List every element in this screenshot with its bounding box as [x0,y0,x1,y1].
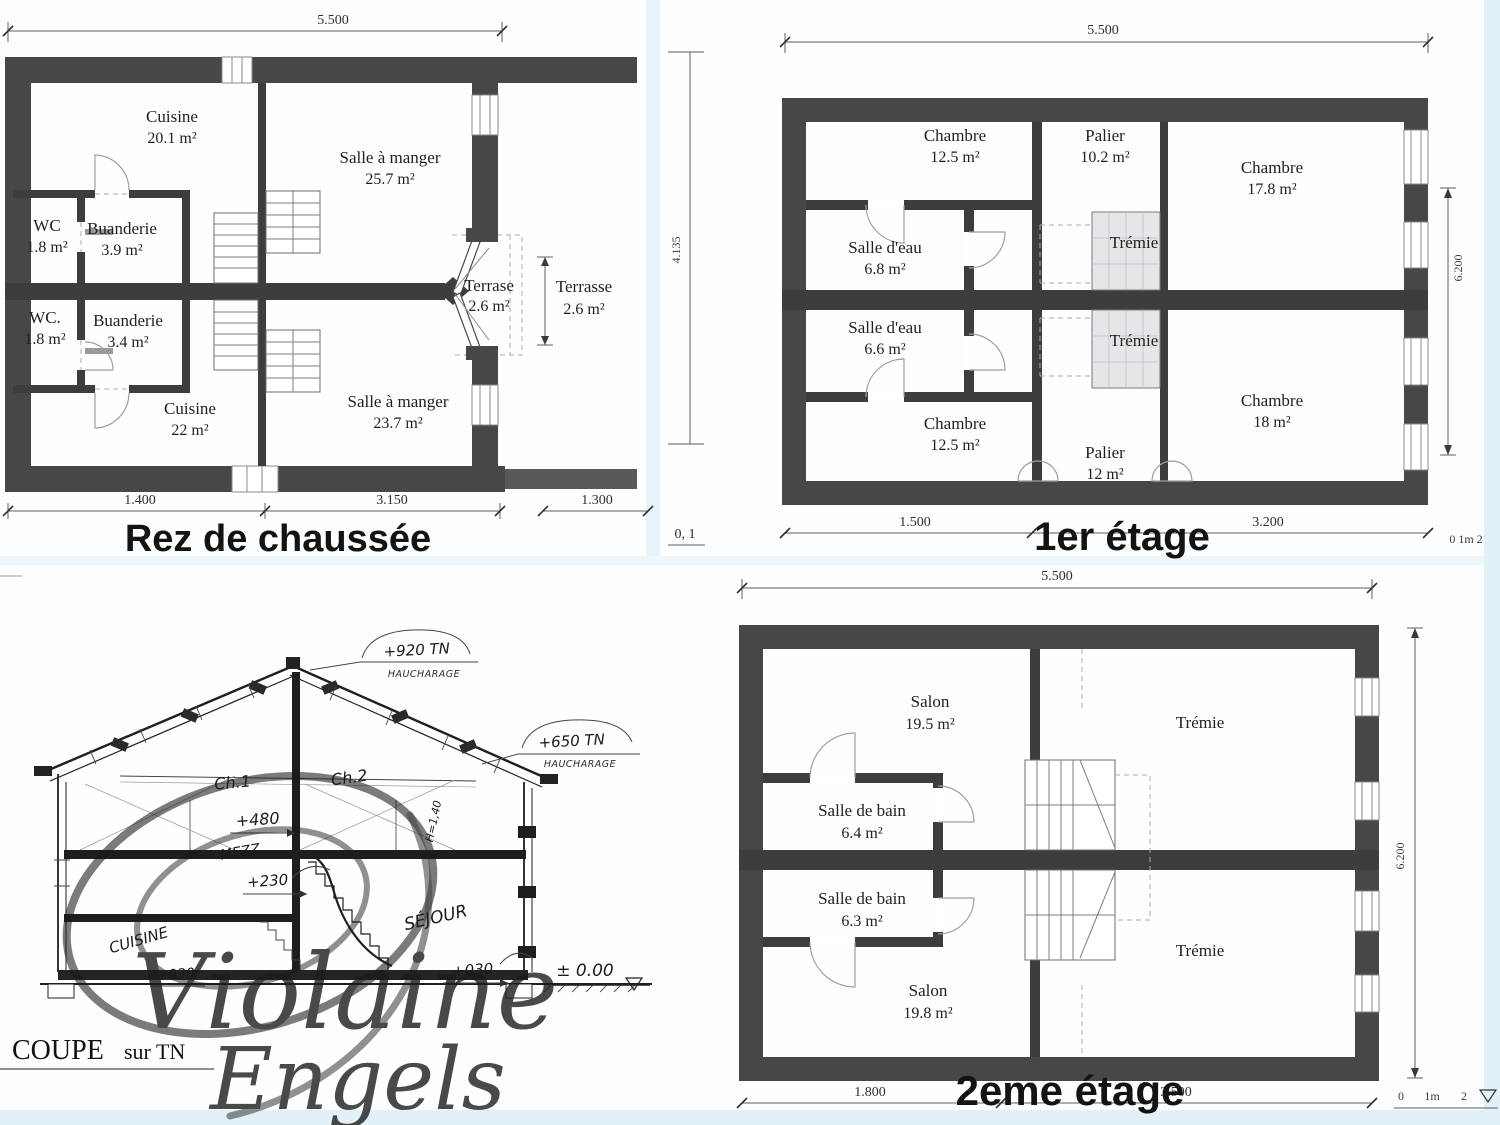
room-label: WC [33,216,60,235]
party-wall [739,850,1379,870]
section-coupe: +920 TN HAUCHARAGE +650 TN HAUCHARAGE Ch… [0,560,660,1125]
room-label: WC. [29,308,61,327]
room-label: Salle de bain [818,889,906,908]
room-label: Trémie [1176,713,1225,732]
dim-label: 1.300 [581,493,613,508]
floorplan-1er-etage: 5.500 4.135 [660,0,1500,560]
terrasse-dimension-arrow [537,257,553,345]
room-label: Salon [911,692,950,711]
dim-label: 3.150 [376,493,408,508]
outer-walls [5,57,637,492]
scale-zero: 0 [1398,1089,1404,1103]
level-note-ridge: HAUCHARAGE [388,669,460,680]
room-label: Salle de bain [818,801,906,820]
interior-wall [258,83,266,283]
room-label: Salle à manger [339,148,440,167]
walls-and-slabs [54,672,536,972]
dimension-top-rdc: 5.500 [3,13,507,42]
level-label-ridge: +920 TN [383,639,450,660]
room-area: 6.6 m² [864,341,905,358]
level-label-eave: +650 TN [538,730,605,751]
section-title-caps: COUPE [12,1035,104,1066]
dim-label: 1.500 [899,515,931,530]
floorplan-2eme-etage: 5.500 [660,560,1500,1125]
watermark-line2: Engels [208,1030,506,1125]
room-label: Chambre [924,414,986,433]
room-label: Trémie [1110,331,1159,350]
dim-label: 6.200 [1451,255,1465,282]
architectural-plans-sheet: 5.500 [0,0,1500,1125]
level-note-eave: HAUCHARAGE [544,759,616,770]
room-area: 20.1 m² [147,130,196,147]
room-label: Salle d'eau [848,238,922,257]
dim-label: 6.200 [1393,843,1407,870]
room-area: 10.2 m² [1080,149,1129,166]
room-label: Salon [909,981,948,1000]
scale-bar: 0 1m 2 [1394,1089,1498,1108]
room-label: Chambre [1241,391,1303,410]
room-label: Palier [1085,126,1125,145]
scale-note-left: 0, 1 [675,527,696,542]
room-area: 6.8 m² [864,261,905,278]
floorplan-rez-de-chaussee: 5.500 [0,0,660,560]
room-label-mezz: MEZZ. [219,840,266,863]
room-label: Palier [1085,443,1125,462]
room-label: Trémie [1110,233,1159,252]
room-area: 1.8 m² [26,239,67,256]
dim-label: 3.200 [1252,515,1284,530]
dim-label: 4.135 [669,237,683,264]
dim-label: 5.500 [1087,23,1119,38]
room-area: 6.4 m² [841,825,882,842]
panel-title-etage2: 2eme étage [956,1067,1185,1114]
dim-label: 5.500 [1041,569,1073,584]
panel-title-rdc: Rez de chaussée [125,518,431,560]
scale-note-right: 0 1m 2 [1449,532,1482,546]
level-label-ground: ± 0.00 [556,961,614,981]
room-area: 19.8 m² [903,1005,952,1022]
room-label: Cuisine [164,399,216,418]
scale-triangle-icon [1480,1090,1496,1102]
dim-label: 1.400 [124,493,156,508]
interior-wall [258,300,266,466]
room-area: 3.9 m² [101,242,142,259]
room-area: 12.5 m² [930,437,979,454]
room-area: 17.8 m² [1247,181,1296,198]
room-label: Buanderie [93,311,163,330]
room-area: 19.5 m² [905,716,954,733]
panel-title-etage1: 1er étage [1034,515,1210,559]
room-area: 12 m² [1086,466,1123,483]
dimension-left-etage1: 4.135 [668,52,704,444]
room-area: 25.7 m² [365,171,414,188]
scale-two: 2 [1461,1089,1467,1103]
dimension-right-etage2: 6.200 [1393,628,1423,1078]
room-area: 2.6 m² [468,298,509,315]
dim-label: 5.500 [317,13,349,28]
room-area: 18 m² [1253,414,1290,431]
room-area: 2.6 m² [563,301,604,318]
room-label: Buanderie [87,219,157,238]
room-area: 12.5 m² [930,149,979,166]
room-label: Chambre [924,126,986,145]
scale-one: 1m [1424,1089,1440,1103]
party-wall [782,290,1428,310]
room-label: Cuisine [146,107,198,126]
level-label-230: +230 [246,871,288,892]
room-label: Terrasse [556,277,612,296]
dimension-right-etage1: 6.200 [1440,188,1465,455]
dimension-bottom-rdc: 1.400 3.150 1.300 [3,493,653,519]
dimension-top-etage2: 5.500 [737,569,1377,599]
room-label: Salle d'eau [848,318,922,337]
dim-label: 1.800 [854,1085,886,1100]
party-wall [5,283,445,300]
room-label: Salle à manger [347,392,448,411]
room-area: 22 m² [171,422,208,439]
dimension-top-etage1: 5.500 [780,23,1433,53]
room-area: 3.4 m² [107,334,148,351]
room-label: Terrase [464,276,514,295]
room-area: 6.3 m² [841,913,882,930]
room-area: 23.7 m² [373,415,422,432]
room-label: Chambre [1241,158,1303,177]
room-label: Trémie [1176,941,1225,960]
room-area: 1.8 m² [24,331,65,348]
